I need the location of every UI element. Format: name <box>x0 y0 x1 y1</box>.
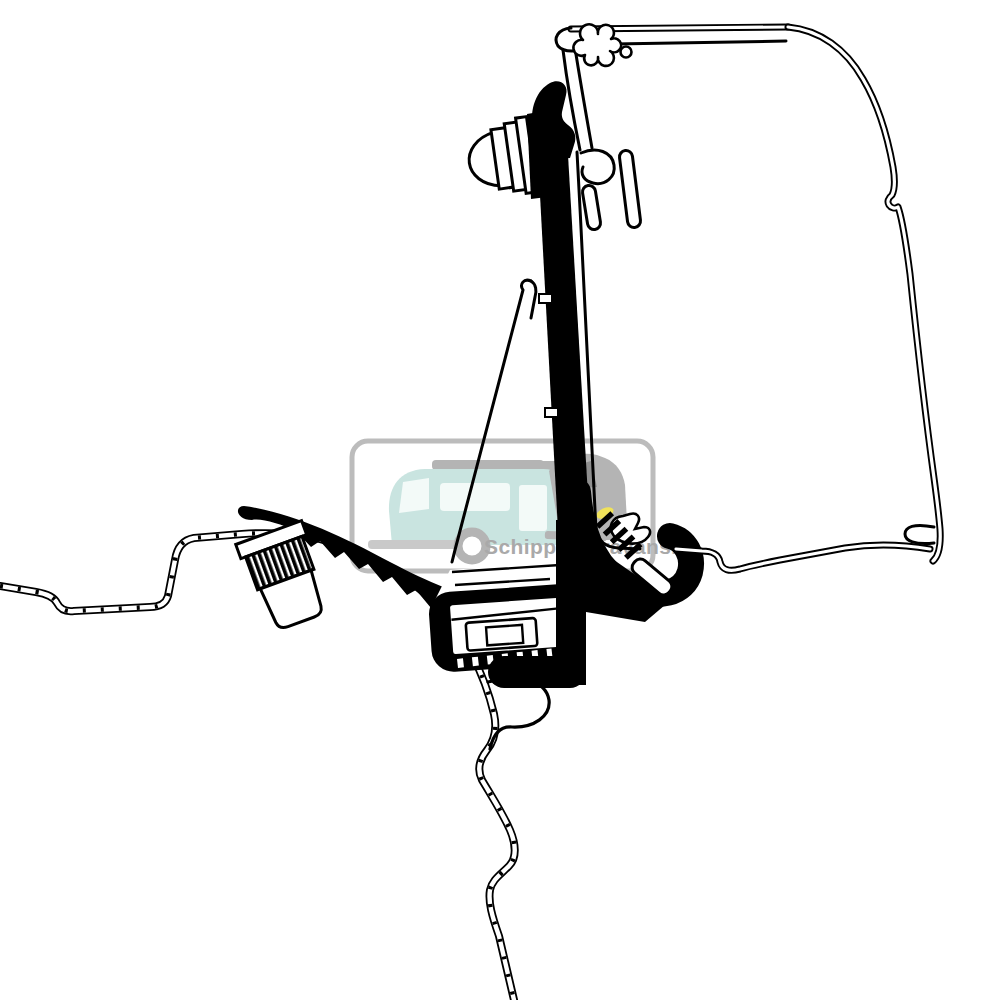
bar-notch-upper <box>539 294 552 303</box>
screw-channel <box>573 24 621 66</box>
case-bottom-lip <box>676 545 930 570</box>
product-image: Schippercaravans.nl <box>0 0 1000 1000</box>
bar-notch-lower <box>545 408 558 417</box>
mounting-bolt <box>464 117 537 201</box>
caravan-wheel <box>458 532 486 560</box>
case-fork <box>905 525 934 543</box>
case-outer-wall <box>788 27 940 561</box>
watermark: Schippercaravans.nl <box>352 441 697 571</box>
rail-hook-detail <box>581 150 614 184</box>
product-line-art: Schippercaravans.nl <box>0 0 1000 1000</box>
